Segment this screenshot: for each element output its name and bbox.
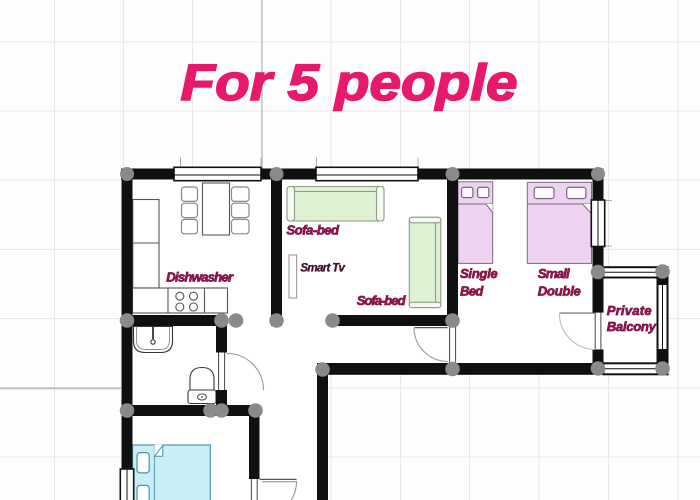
svg-text:Dishwasher: Dishwasher [166, 269, 234, 284]
svg-text:Double: Double [538, 283, 581, 298]
svg-text:Bed: Bed [460, 284, 484, 299]
svg-text:Single: Single [460, 266, 498, 281]
svg-text:Small: Small [538, 266, 570, 281]
svg-text:Smart Tv: Smart Tv [300, 261, 345, 274]
svg-text:Sofa-bed: Sofa-bed [357, 293, 407, 308]
svg-text:Private: Private [607, 303, 652, 318]
svg-text:For 5 people: For 5 people [181, 54, 518, 111]
svg-text:Balcony: Balcony [607, 319, 657, 334]
svg-text:Sofa-bed: Sofa-bed [286, 222, 340, 237]
